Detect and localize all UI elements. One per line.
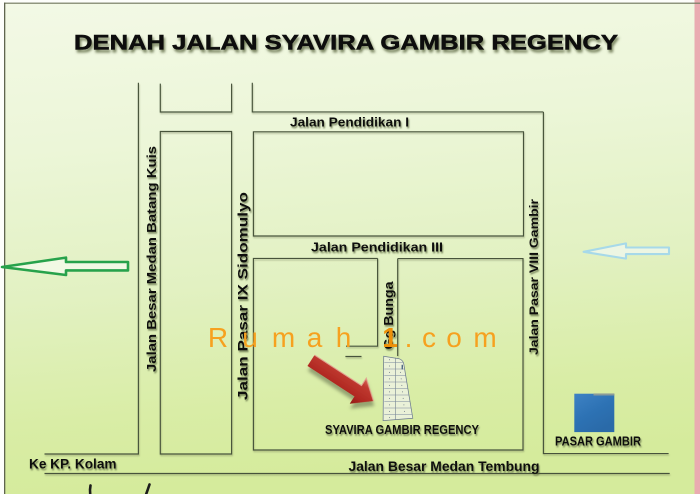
svg-text:u: u <box>242 322 258 353</box>
svg-text:Jalan Besar Medan Tembung: Jalan Besar Medan Tembung <box>349 458 540 474</box>
svg-text:SYAVIRA GAMBIR REGENCY: SYAVIRA GAMBIR REGENCY <box>325 423 480 437</box>
svg-text:DENAH JALAN SYAVIRA GAMBIR REG: DENAH JALAN SYAVIRA GAMBIR REGENCY <box>74 31 618 55</box>
svg-text:o: o <box>446 322 462 353</box>
svg-text:c: c <box>422 322 436 353</box>
svg-text:PASAR GAMBIR: PASAR GAMBIR <box>555 434 642 449</box>
svg-text:Jalan Besar Medan Batang Kuis: Jalan Besar Medan Batang Kuis <box>144 146 159 372</box>
svg-text:m: m <box>473 322 496 353</box>
svg-text:a: a <box>307 322 323 353</box>
svg-text:Ke KP. Kolam: Ke KP. Kolam <box>29 457 117 472</box>
svg-text:.: . <box>405 322 413 353</box>
svg-text:Jalan Pasar VIII Gambir: Jalan Pasar VIII Gambir <box>529 198 541 355</box>
svg-text:1: 1 <box>382 322 398 353</box>
svg-text:Jalan Pasar IX Sidomulyo: Jalan Pasar IX Sidomulyo <box>235 192 250 400</box>
svg-text:h: h <box>336 322 352 353</box>
svg-text:m: m <box>272 322 295 353</box>
svg-text:Jalan Pendidikan III: Jalan Pendidikan III <box>311 240 443 255</box>
svg-text:Jalan Pendidikan I: Jalan Pendidikan I <box>290 115 409 130</box>
svg-text:R: R <box>208 322 228 353</box>
